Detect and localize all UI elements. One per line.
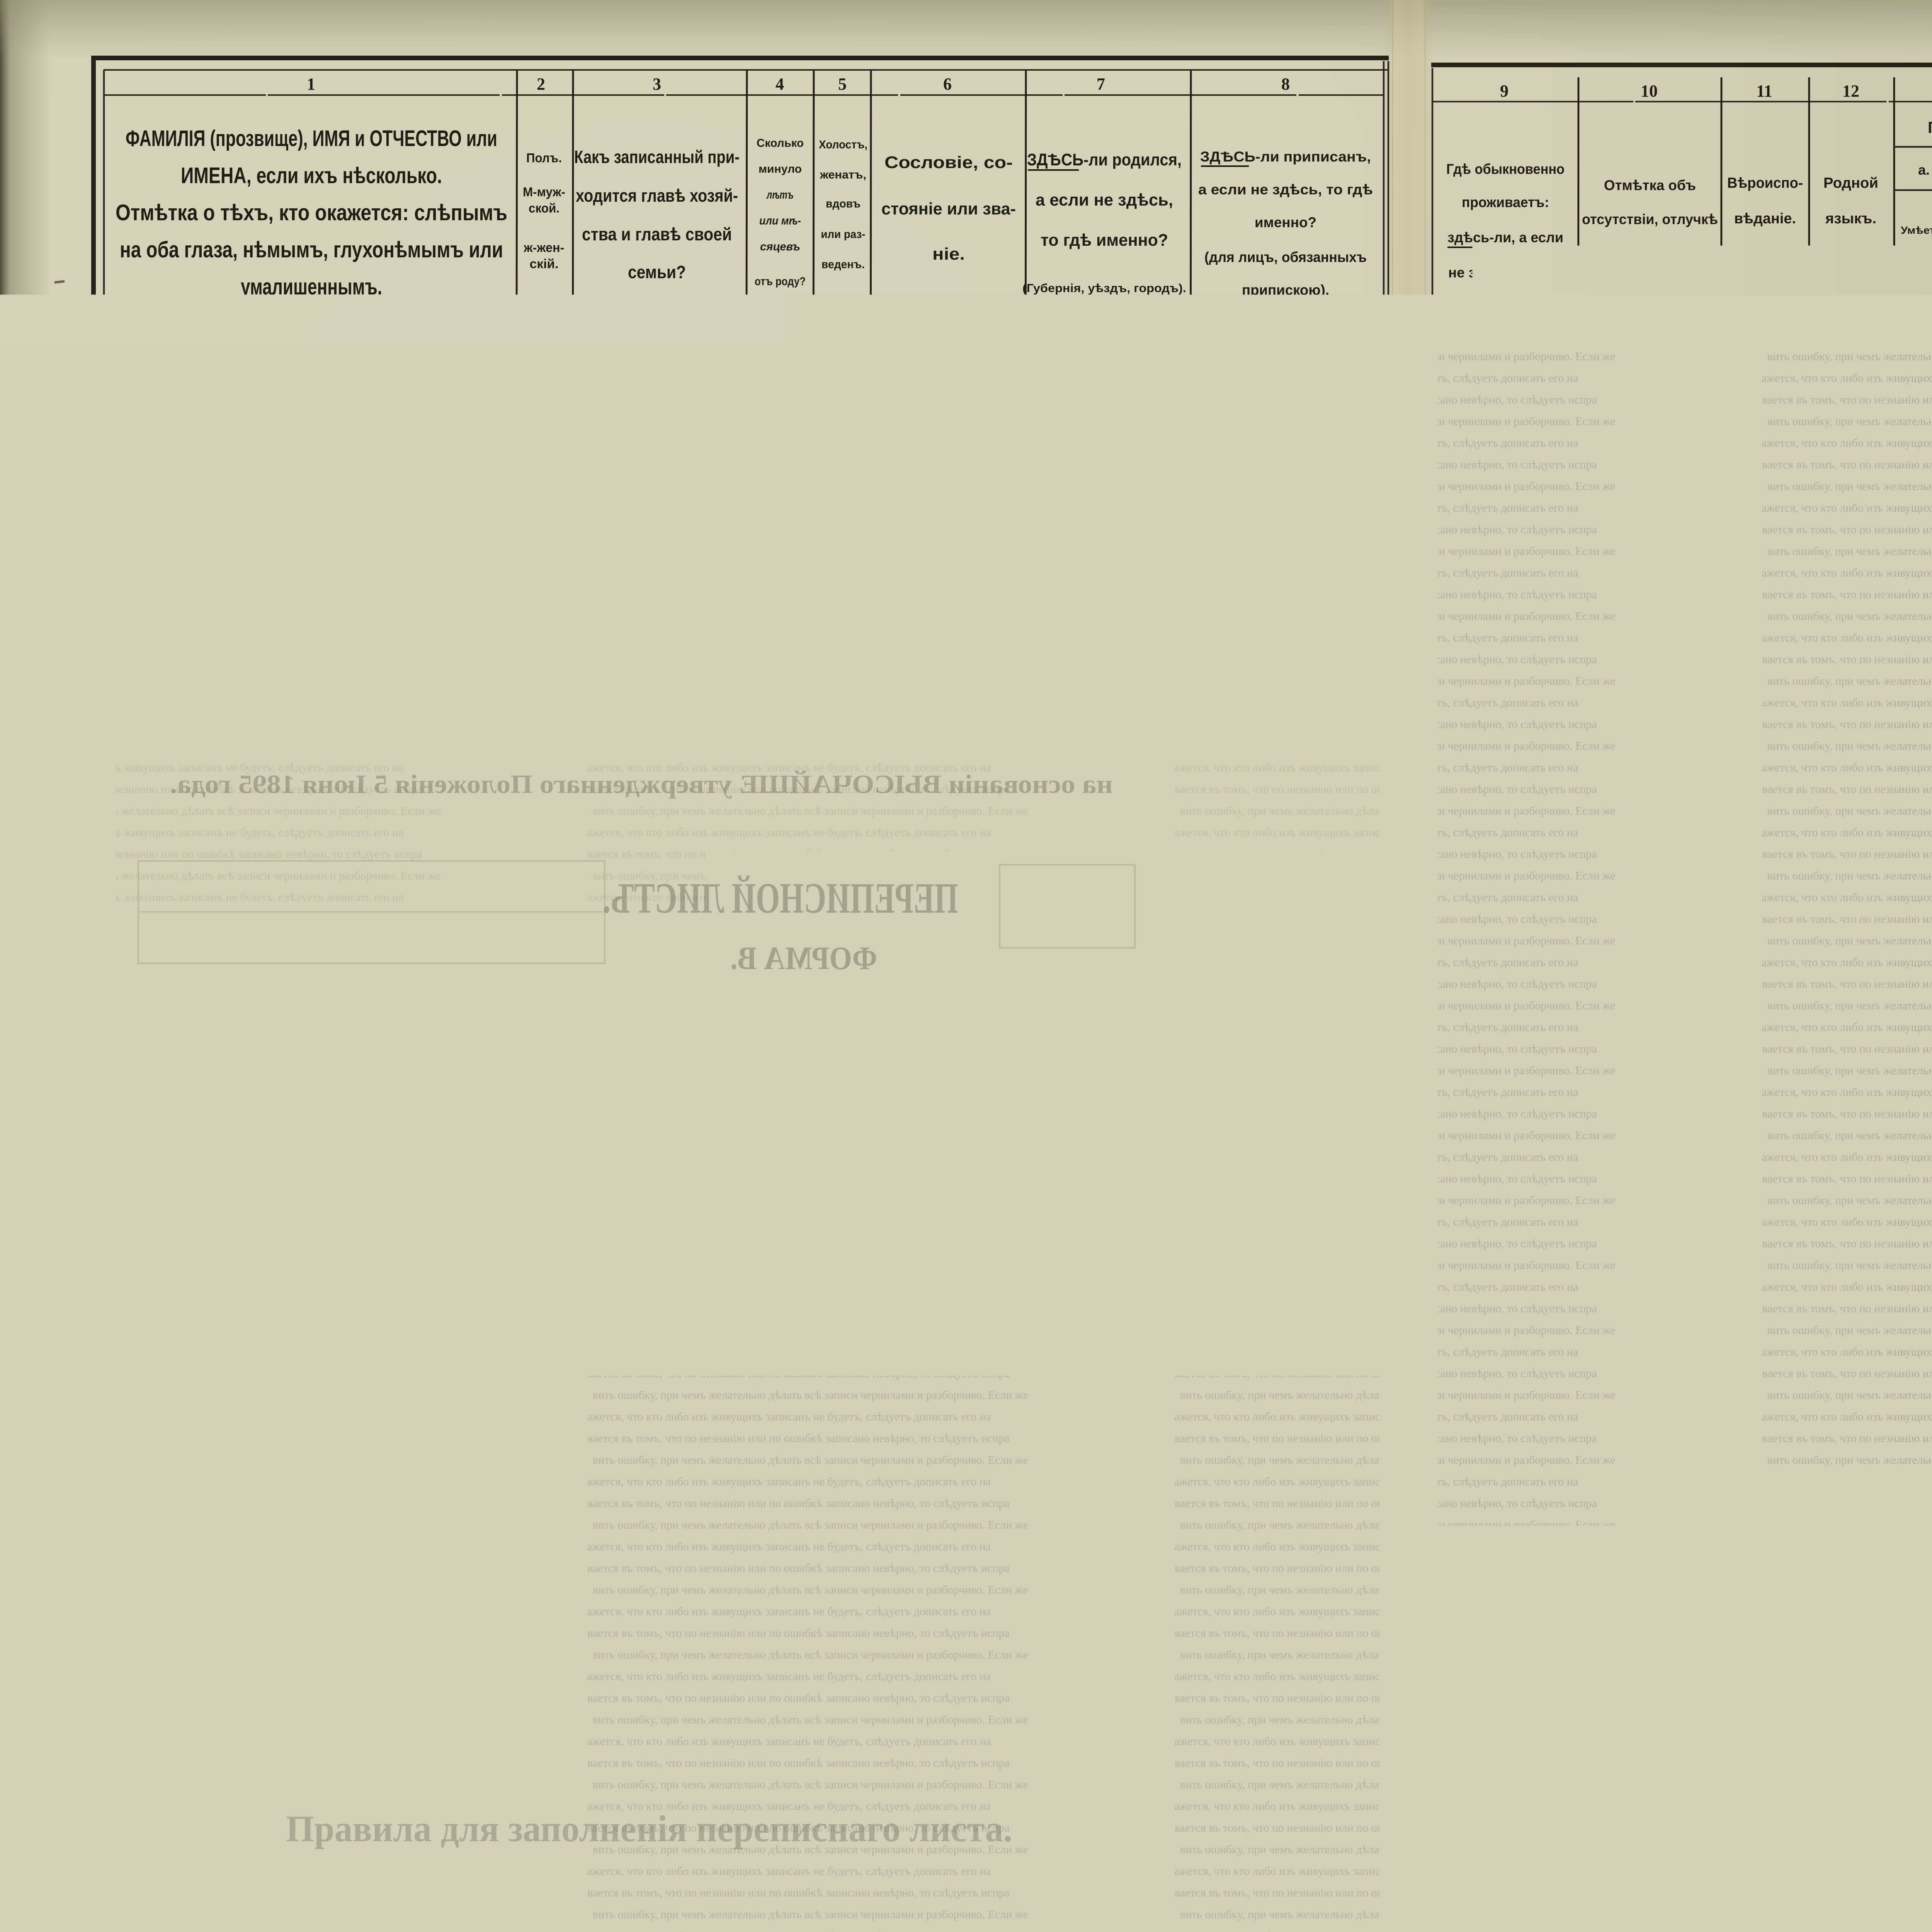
svg-text:сяцевъ: сяцевъ [760, 240, 800, 253]
svg-text:Правила для заполненія перепис: Правила для заполненія переписнаго листа… [286, 1808, 1012, 1849]
svg-text:3: 3 [117, 660, 135, 699]
svg-text:4: 4 [117, 825, 134, 864]
svg-text:4: 4 [776, 75, 784, 94]
svg-text:читать?: читать? [1903, 272, 1932, 283]
svg-text:Умѣетъ-: Умѣетъ- [1901, 224, 1932, 236]
svg-text:5: 5 [116, 989, 134, 1029]
svg-text:ніи.: ніи. [1638, 312, 1662, 328]
svg-text:на оба глаза, нѣмымъ, глухонѣм: на оба глаза, нѣмымъ, глухонѣмымъ или [120, 237, 503, 262]
svg-text:ПЕРВАЯ ВСЕОБЩАЯ ПЕРЕПИСЬ: ПЕРВАЯ ВСЕОБЩАЯ ПЕРЕПИСЬ [163, 364, 1141, 443]
svg-text:2: 2 [119, 495, 137, 535]
svg-text:Холостъ,: Холостъ, [819, 138, 867, 151]
svg-text:(для лицъ, обязанныхъ: (для лицъ, обязанныхъ [1204, 249, 1367, 265]
svg-text:проживаетъ:: проживаетъ: [1462, 194, 1549, 210]
svg-text:ж-жен-: ж-жен- [524, 240, 565, 255]
svg-text:Вѣроиспо-: Вѣроиспо- [1727, 175, 1803, 191]
svg-text:или раз-: или раз- [821, 228, 866, 241]
svg-text:лѣтъ: лѣтъ [766, 189, 794, 201]
svg-text:Отмѣтка о тѣхъ, кто окажется:: Отмѣтка о тѣхъ, кто окажется: слѣпымъ [116, 200, 507, 225]
svg-text:здѣсь-ли, а если: здѣсь-ли, а если [1447, 230, 1563, 245]
svg-text:припискою).: припискою). [1242, 282, 1329, 298]
svg-text:Сословіе, со-: Сословіе, со- [884, 153, 1013, 172]
svg-text:женатъ,: женатъ, [820, 168, 866, 181]
svg-text:Полъ.: Полъ. [526, 151, 562, 165]
svg-text:ходится главѣ хозяй-: ходится главѣ хозяй- [576, 185, 738, 206]
svg-text:скій.: скій. [530, 257, 559, 271]
svg-text:Отмѣтка объ: Отмѣтка объ [1604, 177, 1696, 193]
svg-text:6: 6 [943, 75, 952, 94]
svg-text:1: 1 [307, 75, 315, 94]
svg-text:ніе.: ніе. [932, 245, 965, 264]
svg-text:вѣданіе.: вѣданіе. [1734, 211, 1796, 227]
svg-text:а если не здѣсь, то гдѣ: а если не здѣсь, то гдѣ [1198, 182, 1373, 197]
svg-text:ФАМИЛІЯ (прозвище), ИМЯ и ОТЧЕ: ФАМИЛІЯ (прозвище), ИМЯ и ОТЧЕСТВО или [126, 126, 497, 151]
svg-text:5: 5 [838, 75, 847, 94]
svg-text:10: 10 [1641, 82, 1658, 100]
svg-text:отъ роду?: отъ роду? [755, 275, 806, 288]
svg-text:Г р а м о т н о с т ь.: Г р а м о т н о с т ь. [1928, 118, 1932, 136]
svg-text:языкъ.: языкъ. [1825, 211, 1876, 227]
svg-text:ли: ли [1917, 248, 1930, 259]
svg-text:именно?: именно? [1478, 297, 1533, 313]
svg-text:или мѣ-: или мѣ- [759, 214, 801, 227]
svg-text:8: 8 [1281, 75, 1290, 94]
svg-text:ской.: ской. [529, 201, 560, 215]
svg-text:12: 12 [1842, 82, 1859, 100]
svg-text:минуло: минуло [759, 163, 802, 175]
svg-text:ИМЕНА, если ихъ нѣсколько.: ИМЕНА, если ихъ нѣсколько. [181, 163, 442, 188]
svg-text:Сколько: Сколько [757, 137, 804, 150]
svg-text:на основаніи ВЫСОЧАЙШЕ утвержд: на основаніи ВЫСОЧАЙШЕ утвержденнаго Пол… [170, 769, 1113, 799]
svg-text:и о временномъ: и о временномъ [1595, 245, 1704, 261]
svg-text:9: 9 [1500, 82, 1509, 100]
svg-text:ЗДѢСЬ-ли родился,: ЗДѢСЬ-ли родился, [1027, 150, 1182, 169]
svg-text:9: 9 [113, 1647, 131, 1686]
svg-text:населенія Россійской Имперіи,: населенія Россійской Имперіи, [381, 618, 1038, 669]
svg-text:М-муж-: М-муж- [523, 185, 565, 199]
svg-text:1: 1 [121, 331, 139, 370]
svg-text:ПЕРЕПИСНОЙ ЛИСТЪ.: ПЕРЕПИСНОЙ ЛИСТЪ. [603, 874, 958, 922]
svg-text:(Губер., уѣздъ, городъ).: (Губер., уѣздъ, городъ). [1448, 316, 1563, 328]
svg-text:Гдѣ обыкновенно: Гдѣ обыкновенно [1446, 161, 1565, 177]
svg-text:ства и главѣ своей: ства и главѣ своей [582, 224, 732, 244]
svg-text:здѣсь пребыва-: здѣсь пребыва- [1598, 279, 1702, 295]
svg-text:ЗДѢСЬ-ли приписанъ,: ЗДѢСЬ-ли приписанъ, [1200, 149, 1371, 165]
svg-text:7: 7 [114, 1318, 132, 1357]
svg-text:не здѣсь, то гдѣ: не здѣсь, то гдѣ [1448, 265, 1563, 281]
svg-text:отсутствіи, отлучкѣ: отсутствіи, отлучкѣ [1582, 211, 1718, 227]
svg-text:семьи?: семьи? [628, 262, 686, 282]
svg-text:а.: а. [1918, 162, 1930, 178]
svg-text:6: 6 [115, 1154, 133, 1193]
svg-text:а если не здѣсь,: а если не здѣсь, [1036, 190, 1173, 209]
svg-text:вдовъ: вдовъ [826, 197, 861, 210]
svg-text:именно?: именно? [1255, 214, 1316, 230]
svg-text:8: 8 [114, 1482, 131, 1522]
svg-text:стояніе или зва-: стояніе или зва- [881, 199, 1016, 218]
svg-text:11: 11 [1756, 82, 1772, 100]
svg-text:Какъ записанный при-: Какъ записанный при- [574, 147, 740, 167]
svg-text:7: 7 [1097, 75, 1105, 94]
svg-text:(Губернія, уѣздъ, городъ).: (Губернія, уѣздъ, городъ). [1022, 281, 1186, 295]
svg-text:то гдѣ именно?: то гдѣ именно? [1041, 231, 1168, 250]
svg-text:10: 10 [111, 1811, 147, 1851]
svg-text:умалишеннымъ.: умалишеннымъ. [241, 274, 382, 299]
svg-text:3: 3 [653, 75, 661, 94]
svg-text:ФОРМА В.: ФОРМА В. [730, 940, 877, 976]
svg-text:веденъ.: веденъ. [821, 258, 865, 271]
svg-text:Родной: Родной [1823, 175, 1878, 191]
svg-text:2: 2 [537, 75, 545, 94]
